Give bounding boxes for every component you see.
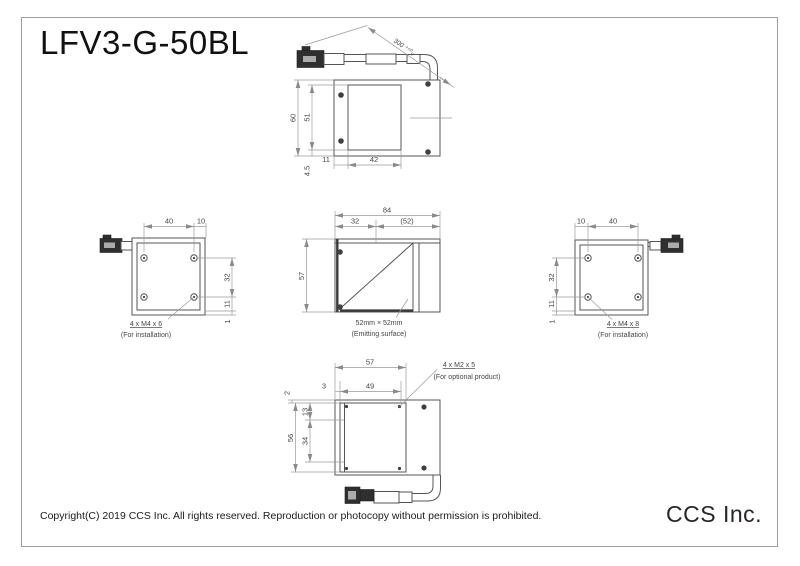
dim-outer-height: 60 [289, 114, 298, 122]
dim-window-width: 49 [366, 382, 374, 391]
view-right: 10 40 32 11 1 4 x M4 x 8 (For installati… [547, 217, 683, 340]
note-optional-sub: (For optional product) [434, 374, 501, 381]
dim-mid: 34 [301, 437, 310, 445]
dim-upper: 13 [301, 408, 310, 416]
connector-slot [348, 491, 356, 500]
screw [421, 404, 426, 409]
view-bottom: 57 3 49 2 13 34 56 4 x M2 x 5 (Fo [283, 358, 501, 504]
m2-screw [345, 467, 348, 470]
dim-height: 56 [286, 434, 295, 442]
dim-top-width: 57 [366, 358, 374, 367]
screw [338, 92, 344, 98]
view-top: 300 ⁺⁵⁰₀ 60 51 4.5 11 [289, 26, 455, 177]
note-optional: 4 x M2 x 5 [443, 362, 475, 369]
screw [337, 304, 343, 310]
ccs-logo: CCS Inc. [666, 501, 762, 528]
note-mounting: 4 x M4 x 8 [607, 321, 639, 328]
connector-slot [104, 243, 115, 249]
strain-relief [650, 242, 661, 251]
view-front: 84 32 (52) 57 52mm × 52mm (Emitting surf… [297, 206, 440, 339]
dim-vert-edge: 1 [223, 319, 232, 323]
bottom-view-body [335, 400, 440, 475]
cable-sleeve [374, 492, 399, 504]
screw [425, 149, 431, 155]
dim-vert-lower: 11 [547, 300, 556, 308]
dim-left-section: 32 [351, 217, 359, 226]
extension-line [305, 26, 367, 46]
dim-left-margin: 11 [322, 155, 330, 164]
view-left: 40 10 32 11 1 4 x M4 x 6 (For installati… [100, 217, 236, 340]
cable-sleeve [366, 54, 396, 64]
connector-nub [302, 47, 310, 51]
screw [425, 81, 431, 87]
connector-slot [668, 243, 679, 249]
cable-ferrule [398, 492, 412, 503]
note-emitting-sub: (Emitting surface) [352, 331, 407, 338]
dim-lip: 3 [322, 382, 326, 391]
strain-relief [324, 54, 344, 65]
strain-relief [360, 490, 374, 502]
screw-hole-center [637, 257, 639, 259]
dim-vert-edge: 1 [548, 319, 557, 323]
screw [338, 138, 344, 144]
dim-right-section: (52) [400, 217, 414, 226]
dim-width: 84 [383, 206, 391, 215]
m2-screw [345, 405, 348, 408]
drawing-page: LFV3-G-50BL 300 ⁺⁵⁰₀ [0, 0, 800, 566]
connector-slot [303, 56, 316, 62]
dim-vert-span: 32 [223, 273, 232, 281]
dim-edge-offset: 10 [197, 217, 205, 226]
screw-hole-center [587, 257, 589, 259]
dim-vert-lower: 11 [223, 300, 232, 308]
screw-hole-center [637, 296, 639, 298]
dim-edge-offset: 10 [577, 217, 585, 226]
connector-nub [672, 235, 680, 239]
dim-bottom-offset: 4.5 [303, 166, 312, 176]
dim-vert-span: 32 [547, 273, 556, 281]
note-emitting-size: 52mm × 52mm [356, 320, 403, 327]
screw [337, 249, 343, 255]
screw-hole-center [143, 296, 145, 298]
dim-height: 57 [297, 272, 306, 280]
note-mounting-sub: (For installation) [121, 332, 171, 339]
dim-edge: 2 [283, 391, 292, 395]
copyright-text: Copyright(C) 2019 CCS Inc. All rights re… [40, 510, 541, 522]
note-mounting-sub: (For installation) [598, 332, 648, 339]
screw-hole-center [143, 257, 145, 259]
m2-screw [398, 467, 401, 470]
drawing-canvas: 300 ⁺⁵⁰₀ 60 51 4.5 11 [0, 0, 800, 566]
cable-outline [374, 475, 433, 494]
strain-relief [121, 242, 132, 251]
dim-window-width: 42 [370, 155, 378, 164]
screw-hole-center [193, 257, 195, 259]
note-mounting: 4 x M4 x 6 [130, 321, 162, 328]
screw [421, 465, 426, 470]
dim-screw-span: 40 [165, 217, 173, 226]
right-view-body [575, 240, 648, 315]
dim-window-height: 51 [303, 113, 312, 121]
dim-screw-span: 40 [609, 217, 617, 226]
front-view-body [335, 239, 440, 312]
